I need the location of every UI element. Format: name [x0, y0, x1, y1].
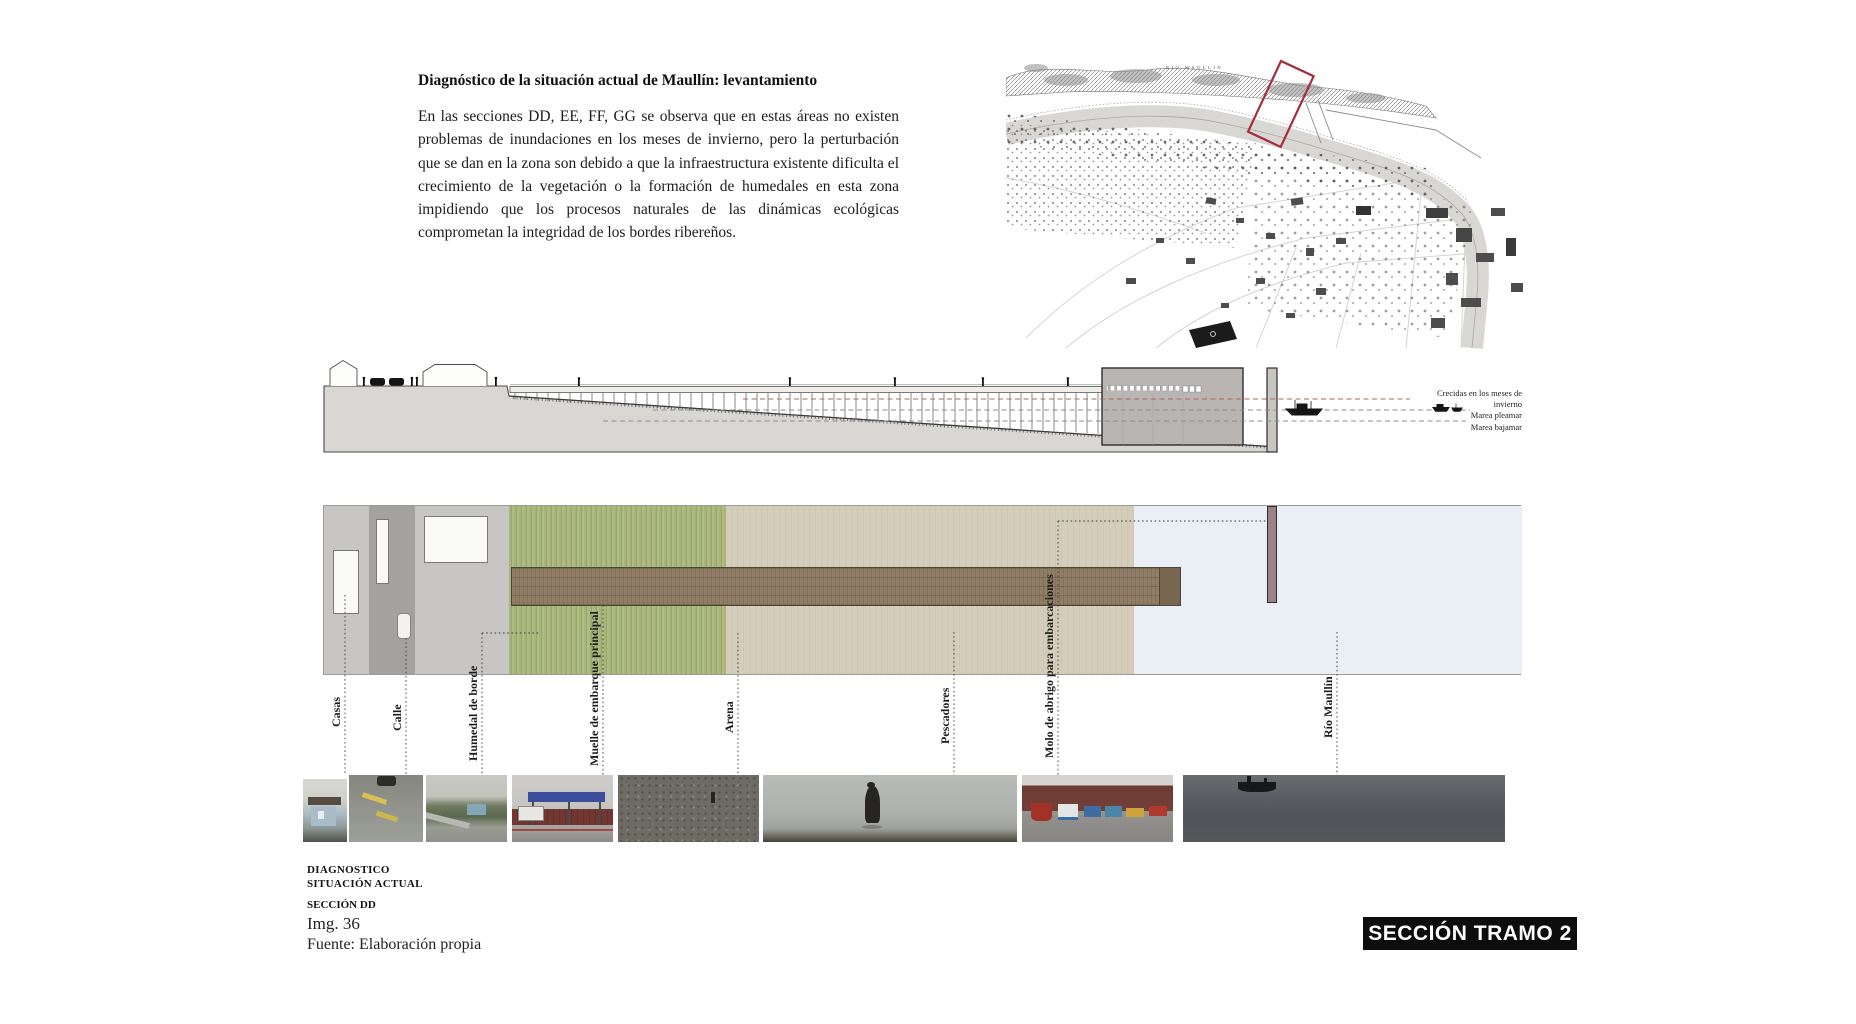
label-muelle: Muelle de embarque principal	[588, 611, 601, 766]
elevation-shed	[423, 365, 487, 387]
page: Diagnóstico de la situación actual de Ma…	[0, 0, 1856, 1024]
label-rio: Río Maullín	[1322, 676, 1335, 738]
intro-paragraph: En las secciones DD, EE, FF, GG se obser…	[418, 105, 899, 245]
tide-labels: Crecidas en los meses de invierno Marea …	[1408, 388, 1522, 433]
elevation-house	[330, 361, 357, 387]
leader-lines	[323, 505, 1523, 795]
elevation-cars	[370, 378, 404, 386]
label-pescadores: Pescadores	[939, 688, 952, 744]
caption-source: Fuente: Elaboración propia	[307, 936, 567, 954]
label-calle: Calle	[391, 704, 404, 731]
high-tide-label: Marea pleamar	[1408, 410, 1522, 421]
label-arena: Arena	[723, 701, 736, 733]
label-humedal: Humedal de borde	[467, 666, 480, 761]
section-elevation	[323, 355, 1556, 465]
label-casas: Casas	[330, 697, 343, 727]
section-badge: SECCIÓN TRAMO 2	[1363, 917, 1577, 950]
caption-section: SECCIÓN DD	[307, 899, 567, 911]
label-molo: Molo de abrigo para embarcaciones	[1043, 574, 1056, 758]
caption-category-line1: DIAGNOSTICO	[307, 864, 567, 878]
elevation-pier-deck	[510, 387, 1102, 393]
caption-category-line2: SITUACIÓN ACTUAL	[307, 878, 567, 892]
map-river-label: RIO MAULLIN	[1166, 65, 1223, 70]
caption-image-number: Img. 36	[307, 914, 567, 934]
map-landmark-block	[1189, 321, 1237, 348]
page-title: Diagnóstico de la situación actual de Ma…	[418, 72, 918, 90]
low-tide-label: Marea bajamar	[1408, 422, 1522, 433]
flood-level-label: Crecidas en los meses de invierno	[1408, 388, 1522, 410]
caption-block: DIAGNOSTICO SITUACIÓN ACTUAL SECCIÓN DD …	[307, 864, 567, 954]
location-map: RIO MAULLIN	[1006, 48, 1530, 353]
